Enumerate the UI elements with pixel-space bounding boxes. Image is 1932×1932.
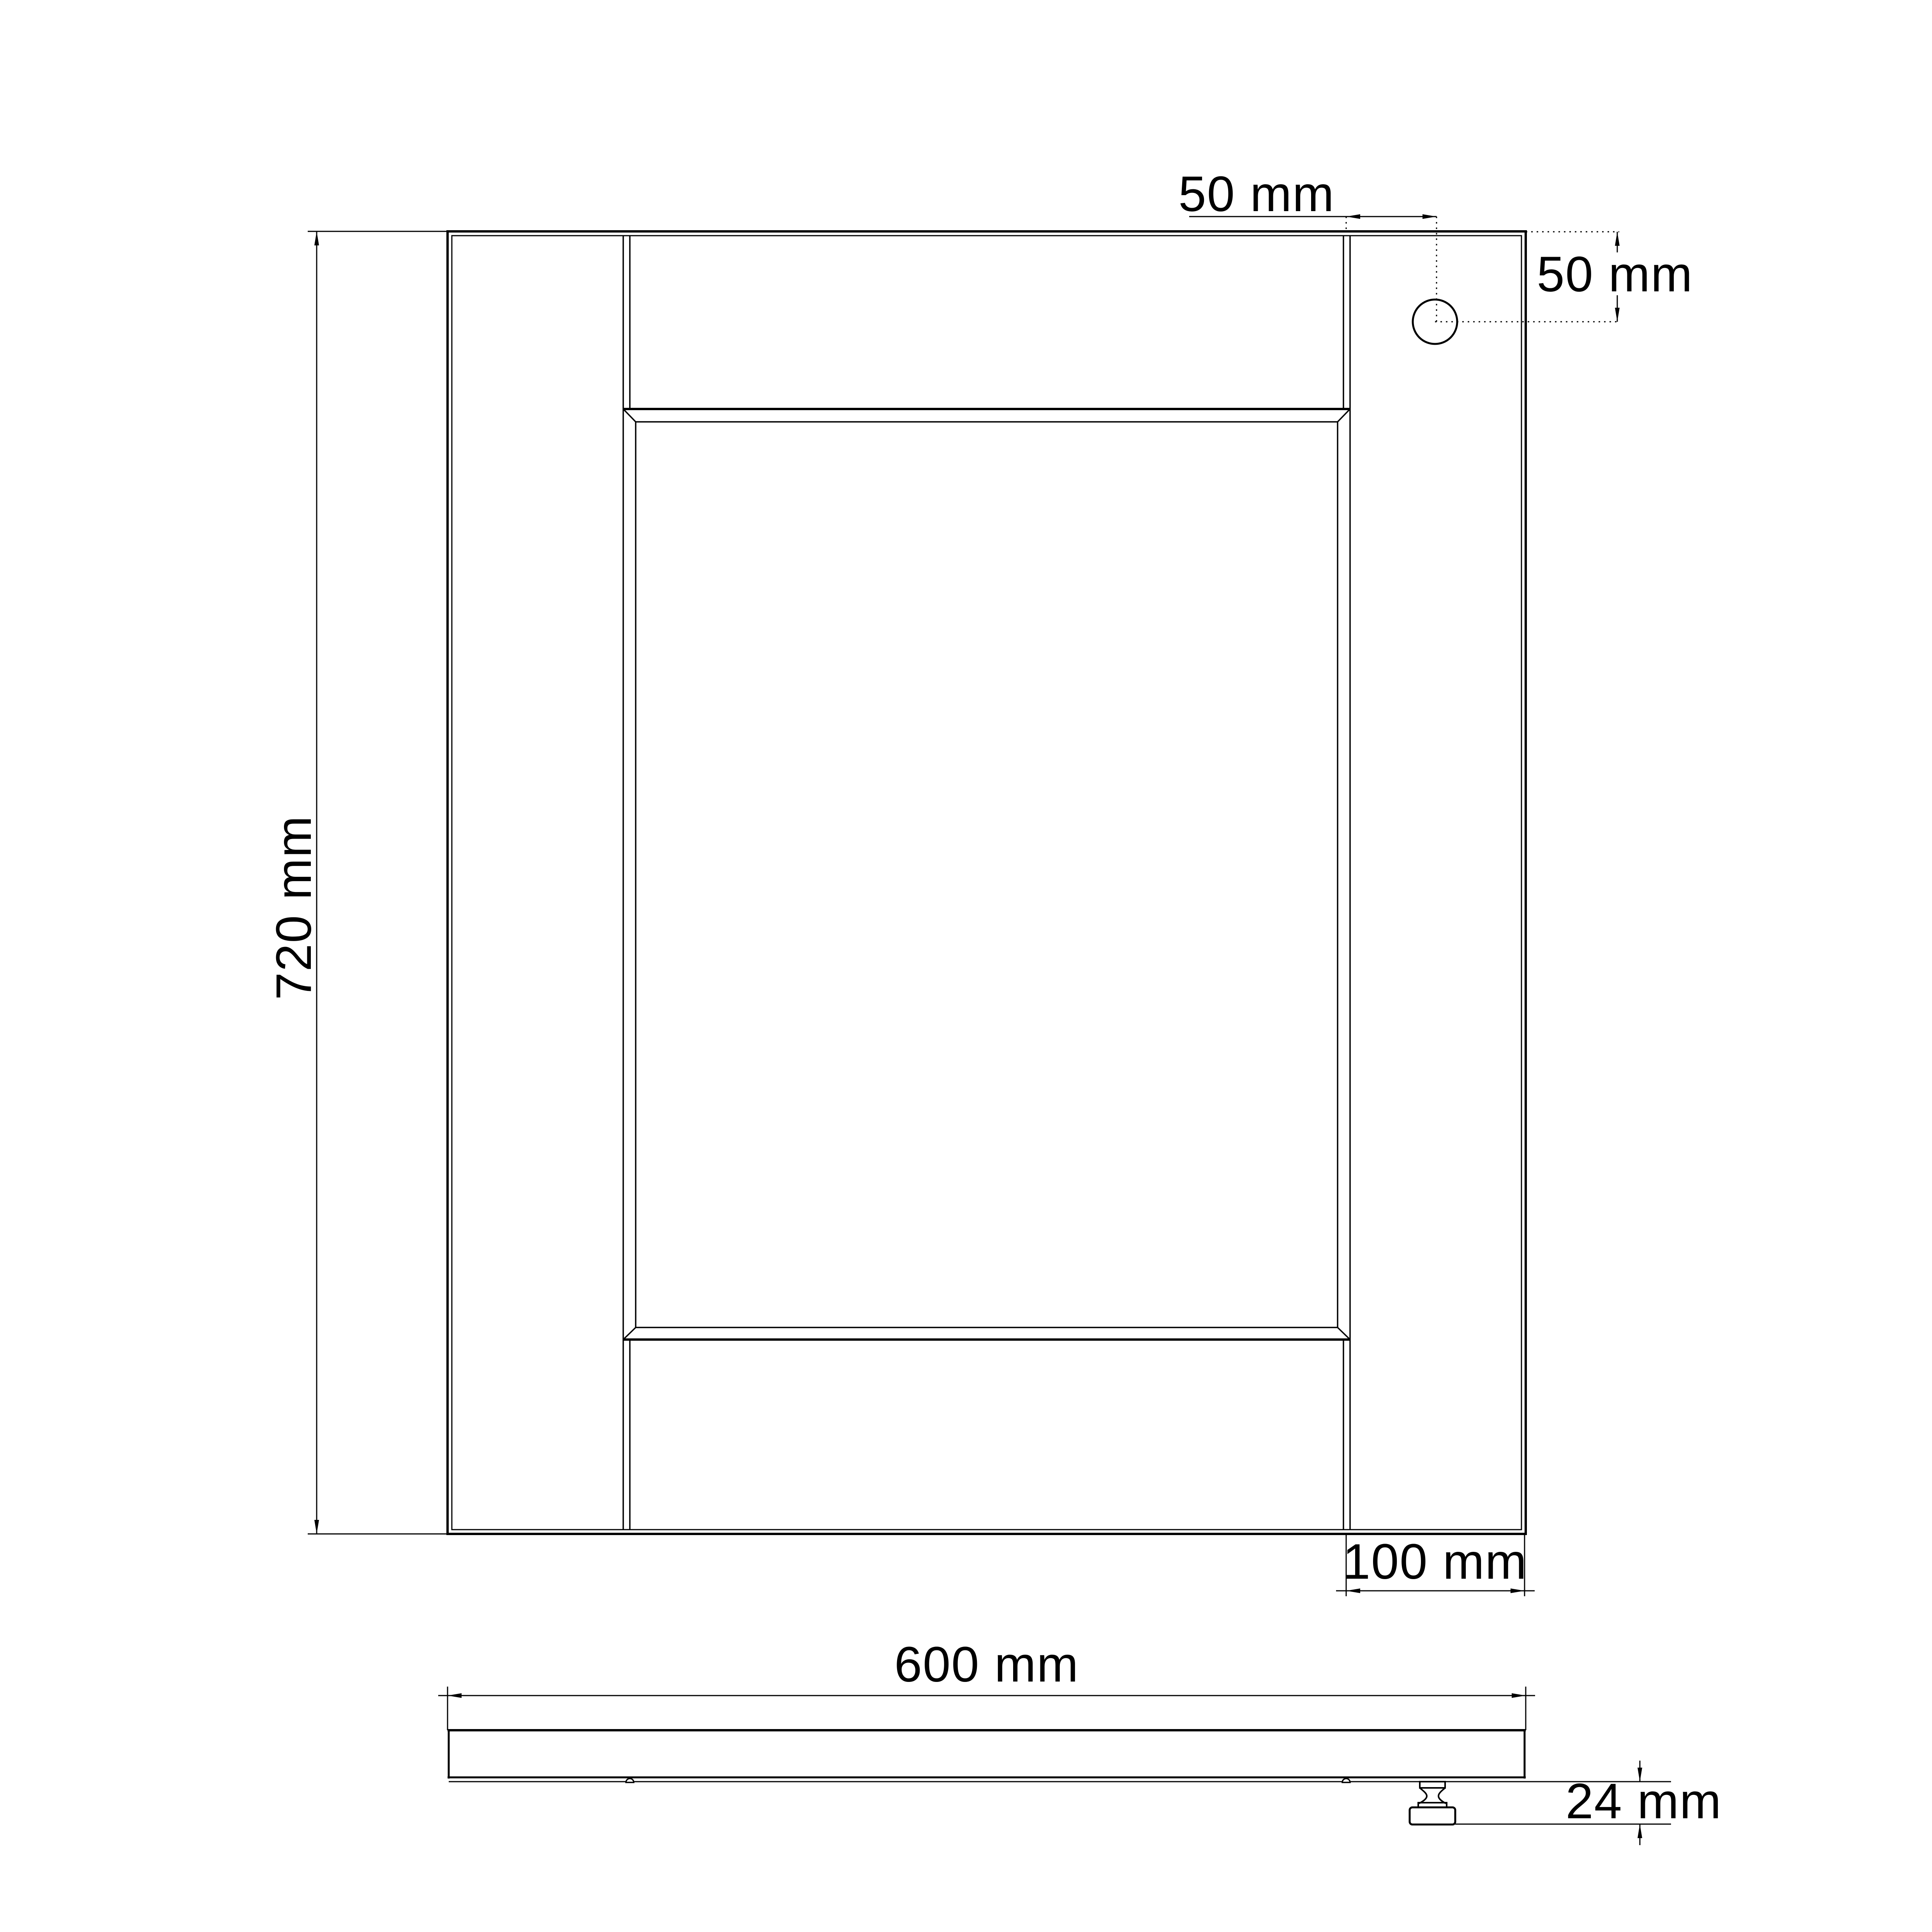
joint-bump-right	[1342, 1779, 1350, 1782]
dim-label-knob-projection: 24 mm	[1565, 1773, 1722, 1829]
joint-bump-left	[626, 1779, 634, 1782]
dimension-stile-width: 100 mm	[1336, 1534, 1535, 1596]
dim-label-knob-offset-vertical: 50 mm	[1537, 247, 1693, 302]
dim-label-door-height: 720 mm	[266, 815, 322, 1000]
knob-head	[1410, 1807, 1455, 1824]
dim-label-knob-offset-horizontal: 50 mm	[1178, 166, 1334, 222]
dim-label-stile-width: 100 mm	[1343, 1534, 1527, 1590]
cabinet-door-drawing: 720 mm 600 mm 100 mm 50 mm 50 mm	[0, 0, 1932, 1932]
dim-label-door-width: 600 mm	[894, 1637, 1079, 1692]
